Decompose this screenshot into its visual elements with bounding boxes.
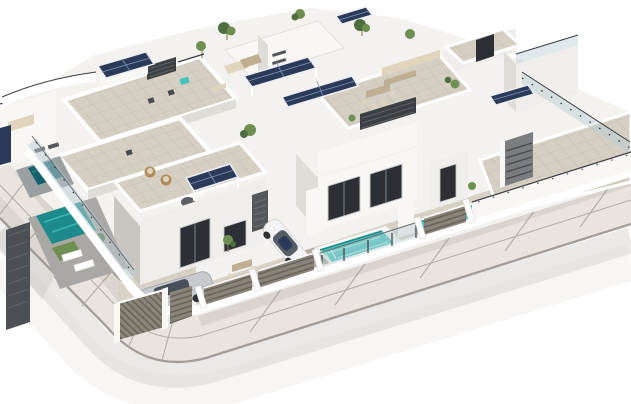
door <box>440 164 456 202</box>
plant <box>468 182 476 190</box>
dark-boundary-wall <box>6 222 30 330</box>
render-canvas: Aerial 3D architectural rendering of a m… <box>0 0 631 404</box>
tree <box>405 29 415 39</box>
solar-panel-wall <box>0 125 11 165</box>
villa-complex-render: Aerial 3D architectural rendering of a m… <box>0 0 631 404</box>
side-wing-wall <box>306 186 322 236</box>
